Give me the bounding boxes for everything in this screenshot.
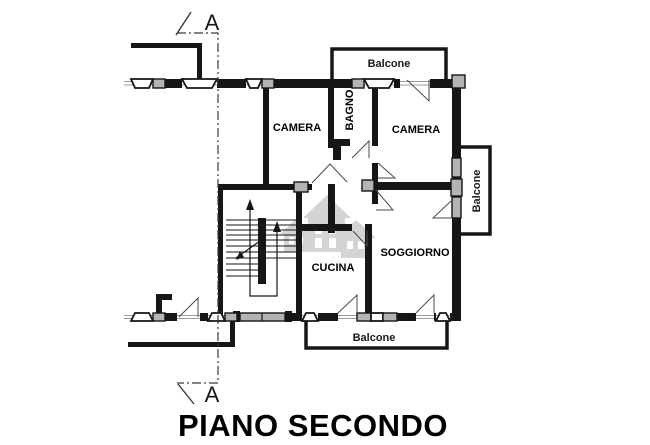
window-sill-lines — [124, 82, 459, 319]
section-label-bottom: A — [205, 382, 220, 407]
floorplan-drawing: A A CAMERA BAGNO CAMERA SOGGIORNO CUCINA… — [0, 0, 650, 445]
room-label-bagno: BAGNO — [344, 89, 356, 130]
page-title: PIANO SECONDO — [178, 408, 448, 443]
balcony-label-right: Balcone — [471, 170, 483, 213]
balcony-label-top: Balcone — [368, 58, 411, 70]
floorplan-image: A A CAMERA BAGNO CAMERA SOGGIORNO CUCINA… — [0, 0, 650, 445]
room-label-camera-left: CAMERA — [273, 122, 321, 134]
room-label-camera-right: CAMERA — [392, 124, 440, 136]
interior-walls — [218, 88, 455, 319]
room-label-soggiorno: SOGGIORNO — [380, 247, 450, 259]
balcony-label-bottom: Balcone — [353, 332, 396, 344]
section-label-top: A — [205, 10, 220, 35]
room-label-cucina: CUCINA — [312, 262, 355, 274]
